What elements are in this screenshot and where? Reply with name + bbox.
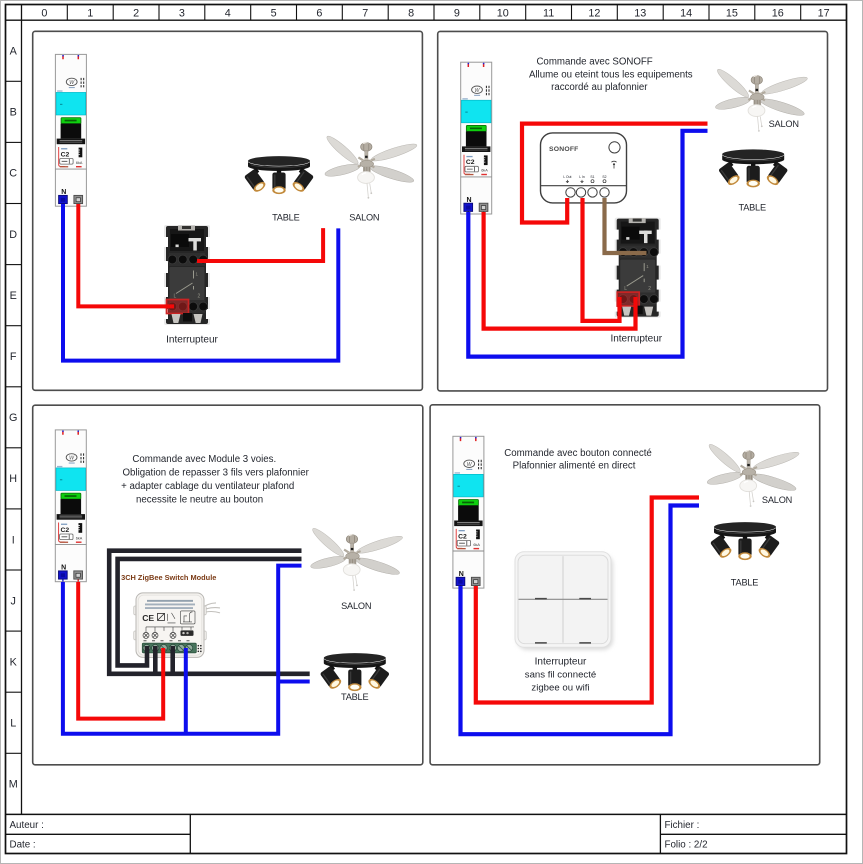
svg-text:Fichier :: Fichier : (665, 820, 700, 831)
svg-text:Auteur :: Auteur : (10, 820, 44, 831)
svg-text:zigbee ou wifi: zigbee ou wifi (531, 682, 589, 693)
svg-text:M: M (9, 779, 18, 791)
svg-text:3: 3 (179, 7, 185, 19)
svg-text:Folio : 2/2: Folio : 2/2 (665, 840, 708, 851)
svg-text:15: 15 (726, 7, 738, 19)
svg-text:sans fil connecté: sans fil connecté (525, 670, 596, 681)
svg-text:1: 1 (87, 7, 93, 19)
svg-text:L: L (10, 718, 16, 730)
svg-text:0: 0 (41, 7, 47, 19)
svg-text:SALON: SALON (341, 601, 371, 611)
svg-text:12: 12 (588, 7, 600, 19)
svg-text:9: 9 (454, 7, 460, 19)
svg-text:10: 10 (497, 7, 509, 19)
svg-text:C: C (9, 168, 17, 180)
svg-text:+ adapter cablage du ventilate: + adapter cablage du ventilateur plafond (121, 481, 294, 492)
svg-text:Obligation de repasser 3 fils: Obligation de repasser 3 fils vers plafo… (123, 467, 310, 478)
svg-text:Allume ou eteint tous les equi: Allume ou eteint tous les equipements (529, 69, 693, 80)
svg-text:4: 4 (225, 7, 231, 19)
svg-text:K: K (10, 657, 18, 669)
svg-text:B: B (10, 107, 17, 119)
svg-text:SALON: SALON (762, 495, 792, 505)
svg-text:Plafonnier alimenté en direct: Plafonnier alimenté en direct (513, 461, 636, 472)
svg-text:D: D (9, 229, 17, 241)
svg-text:TABLE: TABLE (272, 212, 299, 222)
svg-text:TABLE: TABLE (731, 578, 758, 588)
svg-text:11: 11 (543, 7, 554, 19)
svg-text:Date :: Date : (10, 840, 36, 851)
svg-text:Interrupteur: Interrupteur (535, 657, 587, 668)
svg-text:3CH ZigBee Switch Module: 3CH ZigBee Switch Module (121, 573, 216, 582)
svg-text:7: 7 (362, 7, 368, 19)
svg-text:14: 14 (680, 7, 692, 19)
svg-text:Commande avec Module 3 voies.: Commande avec Module 3 voies. (132, 454, 276, 465)
svg-text:Interrupteur: Interrupteur (166, 335, 218, 346)
svg-text:2: 2 (133, 7, 139, 19)
svg-text:Interrupteur: Interrupteur (610, 334, 662, 345)
svg-text:A: A (10, 46, 18, 58)
svg-text:8: 8 (408, 7, 414, 19)
svg-text:E: E (10, 290, 17, 302)
svg-text:I: I (12, 534, 15, 546)
svg-text:F: F (10, 351, 17, 363)
svg-text:17: 17 (818, 7, 830, 19)
svg-text:13: 13 (634, 7, 646, 19)
svg-text:SALON: SALON (769, 119, 799, 129)
svg-text:TABLE: TABLE (341, 692, 368, 702)
svg-text:J: J (10, 595, 15, 607)
svg-text:16: 16 (772, 7, 784, 19)
svg-text:G: G (9, 412, 17, 424)
svg-text:Commande avec bouton connecté: Commande avec bouton connecté (504, 448, 652, 459)
svg-text:5: 5 (271, 7, 277, 19)
svg-text:H: H (9, 473, 17, 485)
svg-text:SALON: SALON (349, 212, 379, 222)
svg-text:Commande avec SONOFF: Commande avec SONOFF (536, 57, 652, 68)
svg-text:raccordé au plafonnier: raccordé au plafonnier (551, 82, 648, 93)
svg-text:TABLE: TABLE (738, 203, 765, 213)
svg-text:6: 6 (316, 7, 322, 19)
svg-text:necessite le neutre au bouton: necessite le neutre au bouton (136, 495, 263, 506)
